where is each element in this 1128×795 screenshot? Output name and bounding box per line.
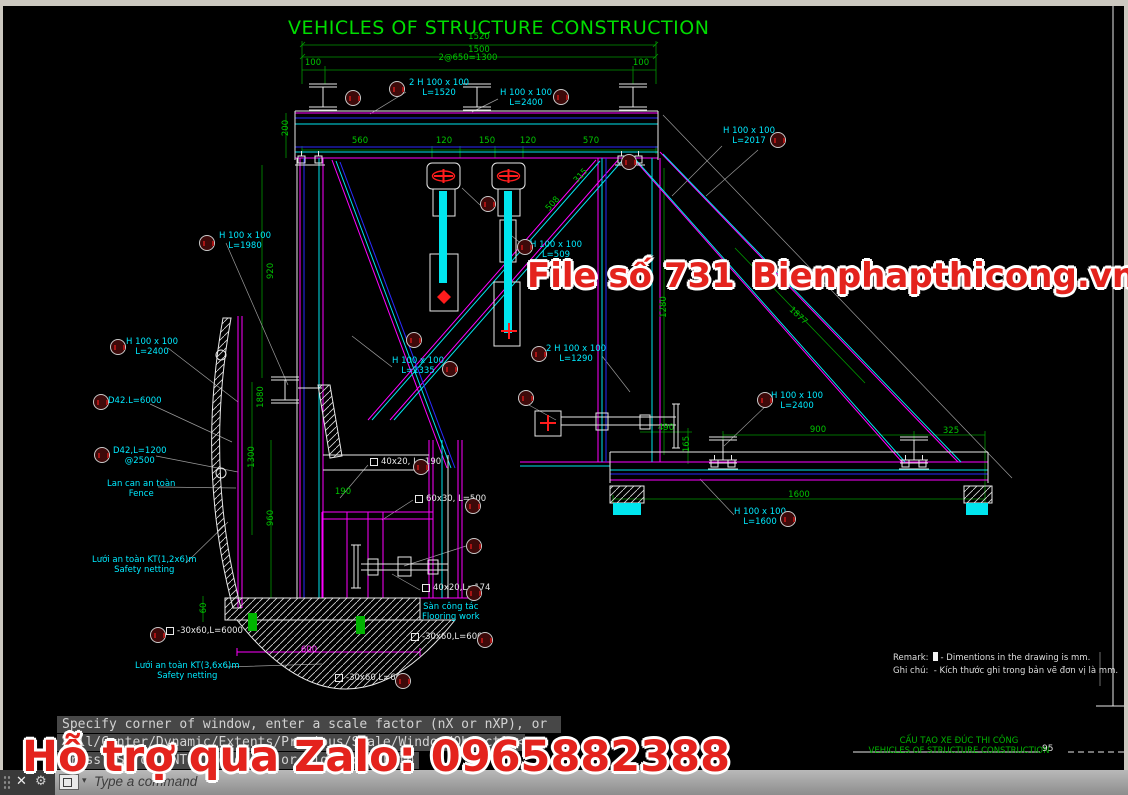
autocad-window: 152015001002@650=13001002005601201501205… — [0, 0, 1128, 795]
remark-block: Remark:- Dimentions in the drawing is mm… — [893, 652, 1118, 678]
watermark-file-number: File số 731 — [527, 256, 735, 296]
remark-text-en: - Dimentions in the drawing is mm. — [941, 653, 1091, 663]
cyan-members — [295, 124, 988, 598]
blue-members — [295, 118, 988, 598]
sheet-title-vn: CẤU TẠO XE ĐÚC THI CÔNG — [853, 736, 1065, 746]
cursor-swatch — [933, 652, 938, 661]
command-history-line-1: Specify corner of window, enter a scale … — [57, 716, 561, 733]
sheet-title-block: CẤU TẠO XE ĐÚC THI CÔNG VEHICLES OF STRU… — [853, 736, 1065, 756]
leader-lines — [150, 92, 1100, 686]
window-frame-left — [0, 0, 3, 770]
remark-text-vn: - Kích thước ghi trong bản vẽ đơn vị là … — [934, 666, 1118, 676]
remark-line-en: Remark:- Dimentions in the drawing is mm… — [893, 652, 1118, 665]
remark-line-vn: Ghi chú: - Kích thước ghi trong bản vẽ đ… — [893, 665, 1118, 678]
sheet-page-number: 95 — [1042, 744, 1053, 754]
drag-handle-icon[interactable] — [3, 775, 11, 790]
drawing-title: VEHICLES OF STRUCTURE CONSTRUCTION — [288, 17, 709, 39]
window-frame-right — [1124, 0, 1128, 770]
remark-label-vn: Ghi chú: — [893, 666, 928, 676]
sheet-title-en: VEHICLES OF STRUCTURE CONSTRUCTION — [853, 746, 1065, 756]
watermark-zalo-contact: Hỗ trợ qua Zalo: 0965882388 — [22, 732, 730, 782]
dimension-lines — [203, 41, 985, 622]
window-frame-top — [0, 0, 1128, 6]
watermark-website: Bienphapthicong.vn — [752, 256, 1128, 296]
remark-label-en: Remark: — [893, 653, 929, 663]
